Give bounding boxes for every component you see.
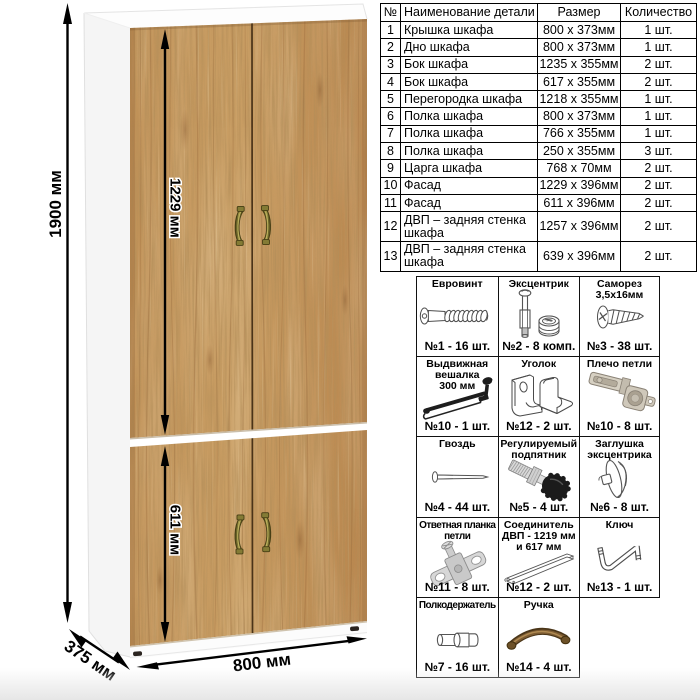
svg-text:1229 мм: 1229 мм (167, 178, 184, 238)
svg-text:1900 мм: 1900 мм (46, 170, 65, 238)
svg-text:611 мм: 611 мм (167, 505, 184, 556)
